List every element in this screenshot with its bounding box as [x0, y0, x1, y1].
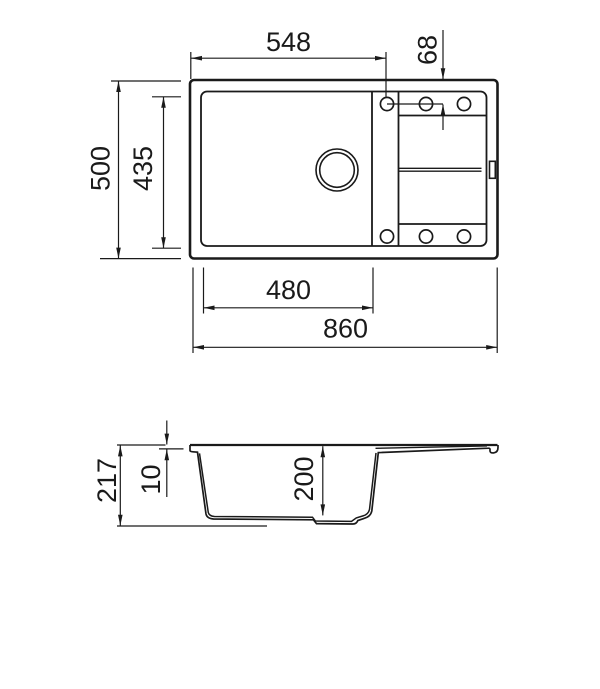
tap-holes — [380, 97, 470, 243]
sink-outer-outline — [190, 80, 498, 259]
dim-top-width-label: 548 — [266, 27, 311, 57]
tap-hole — [457, 97, 470, 110]
tap-hole — [457, 230, 470, 243]
tap-hole — [380, 230, 393, 243]
dim-overall-depth-label: 500 — [86, 146, 116, 191]
section-outer-profile — [190, 445, 498, 524]
tap-hole — [419, 230, 432, 243]
dim-rim-height-label: 10 — [136, 464, 166, 494]
dim-bowl-inner-depth: 435 — [128, 97, 181, 248]
drain-icon — [316, 149, 358, 191]
dim-bowl-inner-depth-label: 435 — [128, 146, 158, 191]
sink-technical-drawing: 548 68 500 435 — [0, 0, 600, 689]
dim-rim-height: 10 — [136, 421, 169, 498]
dim-tap-offset-label: 68 — [413, 35, 443, 65]
drainer-board-edge — [376, 446, 488, 448]
dim-bowl-depth-label: 200 — [289, 456, 319, 501]
dim-overall-width-label: 860 — [323, 314, 368, 344]
dim-bowl-depth: 200 — [289, 446, 325, 515]
drainer-middle-groove — [399, 168, 482, 171]
dim-bowl-width: 480 — [204, 268, 374, 314]
top-view: 548 68 500 435 — [86, 27, 498, 353]
section-view: 217 10 200 — [92, 421, 498, 527]
dim-overall-height: 217 — [92, 445, 267, 526]
dim-overall-width: 860 — [193, 268, 497, 354]
overflow-notch — [490, 161, 496, 178]
dim-overall-height-label: 217 — [92, 458, 122, 503]
dim-top-width: 548 — [191, 27, 386, 97]
dim-bowl-width-label: 480 — [266, 275, 311, 305]
section-inner-profile — [200, 453, 377, 522]
